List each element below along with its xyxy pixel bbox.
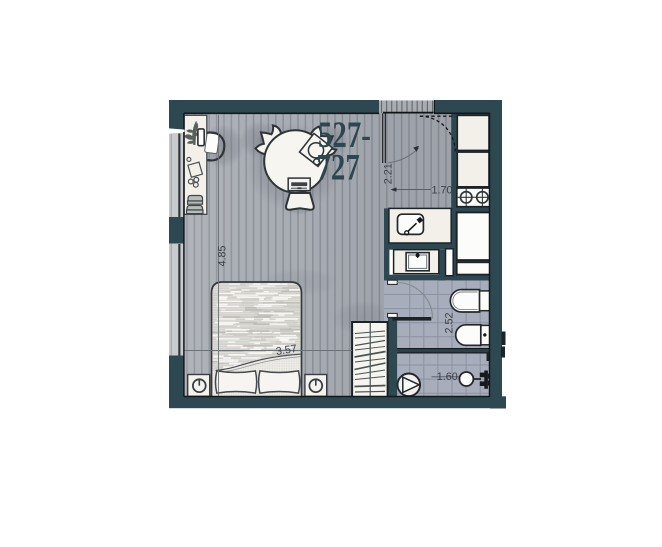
svg-text:1.70: 1.70 — [432, 184, 453, 196]
svg-text:4.85: 4.85 — [216, 245, 228, 266]
svg-text:727: 727 — [317, 147, 360, 188]
svg-text:1.60: 1.60 — [437, 371, 458, 383]
svg-text:2.52: 2.52 — [444, 312, 456, 333]
svg-text:2.21: 2.21 — [382, 163, 394, 184]
